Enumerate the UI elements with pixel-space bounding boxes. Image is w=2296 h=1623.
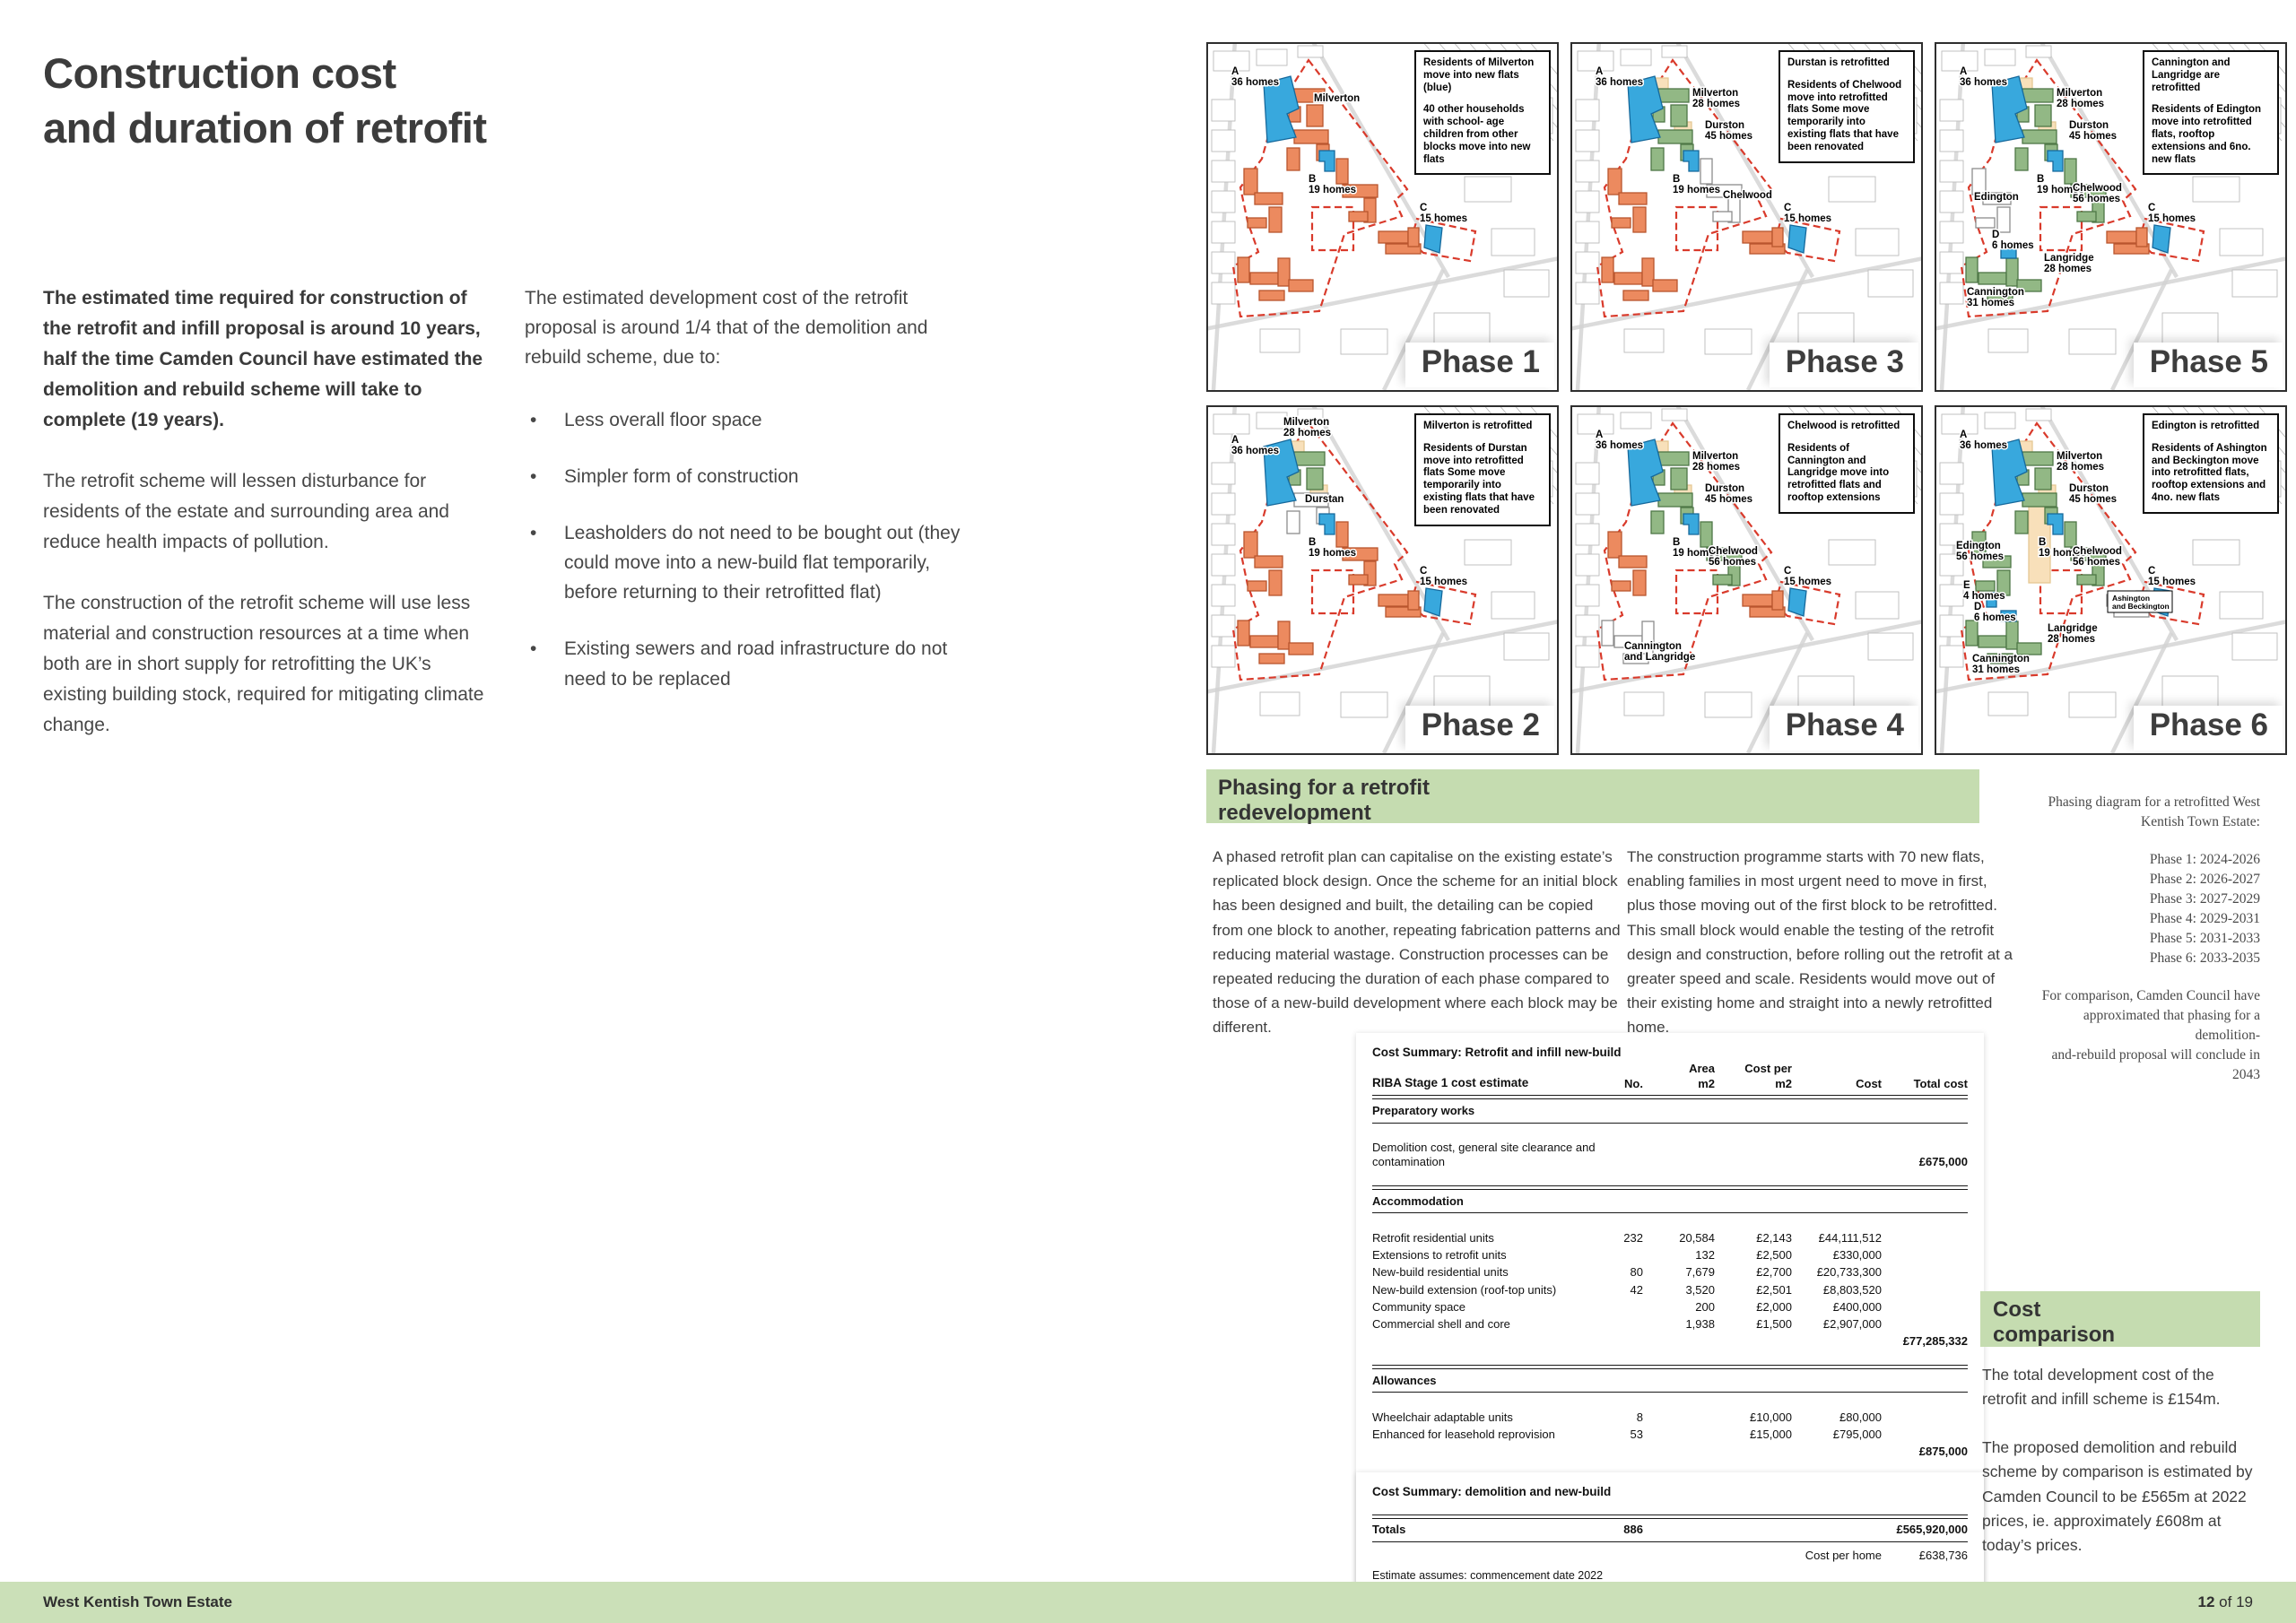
map-label: Durston45 homes bbox=[1705, 483, 1752, 505]
phase-label: Phase 5 bbox=[2134, 343, 2283, 387]
table-cell: £2,000 bbox=[1715, 1300, 1792, 1315]
annotation-paragraph: Edington is retrofitted bbox=[2152, 421, 2270, 433]
table-row: Extensions to retrofit units132£2,500£33… bbox=[1372, 1247, 1968, 1264]
map-label: Durston45 homes bbox=[2069, 120, 2117, 142]
bullet-item: Leasholders do not need to be bought out… bbox=[525, 518, 978, 608]
map-label: Langridge28 homes bbox=[2044, 253, 2094, 274]
section-row: Accommodation bbox=[1372, 1193, 1968, 1210]
table-row: £875,000 bbox=[1372, 1444, 1968, 1461]
map-label: Chelwood56 homes bbox=[2073, 546, 2122, 568]
paragraph: The construction of the retrofit scheme … bbox=[43, 588, 488, 741]
page-title-line2: and duration of retrofit bbox=[43, 107, 671, 149]
table-cell: £875,000 bbox=[1882, 1445, 1968, 1459]
map-label: B19 homes bbox=[1673, 174, 1720, 195]
column-header: Cost bbox=[1792, 1077, 1882, 1091]
phase-label: Phase 1 bbox=[1405, 343, 1554, 387]
table-title: Cost Summary: Retrofit and infill new-bu… bbox=[1372, 1046, 1968, 1061]
intro-paragraph: The estimated time required for construc… bbox=[43, 283, 488, 436]
map-label: Chelwood56 homes bbox=[1709, 546, 1758, 568]
table-cell: Enhanced for leasehold reprovision bbox=[1372, 1428, 1596, 1442]
report-page: Construction cost and duration of retrof… bbox=[0, 0, 2296, 1623]
map-label: A36 homes bbox=[1960, 66, 2007, 88]
table-cell: Allowances bbox=[1372, 1374, 1596, 1388]
map-label: C15 homes bbox=[1420, 566, 1467, 587]
margin-note-line: For comparison, Camden Council have bbox=[2031, 986, 2260, 1006]
table-cell: £44,111,512 bbox=[1792, 1231, 1882, 1245]
table-row: Commercial shell and core1,938£1,500£2,9… bbox=[1372, 1316, 1968, 1333]
annotation-paragraph: Milverton is retrofitted bbox=[1423, 421, 1542, 433]
table-cell: Wheelchair adaptable units bbox=[1372, 1410, 1596, 1425]
annotation-paragraph: Chelwood is retrofitted bbox=[1787, 421, 1906, 433]
section-row: Allowances bbox=[1372, 1372, 1968, 1389]
table-cell: £80,000 bbox=[1792, 1410, 1882, 1425]
table-title: Cost Summary: demolition and new-build bbox=[1372, 1485, 1968, 1500]
table-cell: £8,803,520 bbox=[1792, 1283, 1882, 1298]
margin-note-line: Phase 4: 2029-2031 bbox=[2031, 909, 2260, 929]
table-cell: £2,501 bbox=[1715, 1283, 1792, 1298]
table-row: Totals886£565,920,000 bbox=[1372, 1522, 1968, 1539]
table-cell: Community space bbox=[1372, 1300, 1596, 1315]
footer-estate-name: West Kentish Town Estate bbox=[43, 1593, 232, 1611]
table-row: Retrofit residential units23220,584£2,14… bbox=[1372, 1229, 1968, 1246]
paragraph: The retrofit scheme will lessen disturba… bbox=[43, 466, 488, 558]
map-label: Edington bbox=[1974, 192, 2019, 203]
footer-bar: West Kentish Town Estate 12 of 19 bbox=[0, 1582, 2296, 1623]
map-label: Cannington31 homes bbox=[1972, 654, 2030, 675]
map-label: C15 homes bbox=[1420, 203, 1467, 224]
table-cell: £400,000 bbox=[1792, 1300, 1882, 1315]
annotation-paragraph: Residents of Durstan move into retrofitt… bbox=[1423, 443, 1542, 517]
cost-comparison-heading: Cost comparison bbox=[1980, 1291, 2260, 1347]
phase-label: Phase 6 bbox=[2134, 706, 2283, 751]
table-cell: £330,000 bbox=[1792, 1248, 1882, 1263]
phasing-text-col1: A phased retrofit plan can capitalise on… bbox=[1213, 845, 1623, 1040]
table-cell: 53 bbox=[1596, 1428, 1643, 1442]
map-label: Milverton28 homes bbox=[2057, 88, 2104, 109]
phasing-text-col2: The construction programme starts with 7… bbox=[1627, 845, 2014, 1040]
column-header: No. bbox=[1596, 1077, 1643, 1091]
annotation-box: Residents of Milverton move into new fla… bbox=[1414, 50, 1551, 175]
map-label: C15 homes bbox=[2148, 566, 2196, 587]
map-label: B19 homes bbox=[1309, 537, 1356, 559]
map-label: Canningtonand Langridge bbox=[1624, 641, 1695, 663]
map-label: A36 homes bbox=[1231, 66, 1279, 88]
phase-panel-6: A36 homesMilverton28 homesDurston45 home… bbox=[1935, 405, 2287, 755]
map-label: Edington56 homes bbox=[1956, 541, 2004, 562]
table-cell: 80 bbox=[1596, 1265, 1643, 1280]
map-label: Milverton28 homes bbox=[1692, 88, 1740, 109]
cc-heading-line: Cost bbox=[1993, 1298, 2260, 1323]
margin-note-line: Phase 2: 2026-2027 bbox=[2031, 870, 2260, 890]
table-cell: Cost per home bbox=[1792, 1549, 1882, 1563]
table-cell: 232 bbox=[1596, 1231, 1643, 1245]
bullet-item: Less overall floor space bbox=[525, 405, 978, 435]
left-text-column: The estimated time required for construc… bbox=[43, 283, 488, 771]
table-row: Demolition cost, general site clearance … bbox=[1372, 1140, 1968, 1172]
phase-panel-3: A36 homesMilverton28 homesDurston45 home… bbox=[1570, 42, 1923, 392]
map-label: Milverton28 homes bbox=[1692, 451, 1740, 473]
table-cell: 42 bbox=[1596, 1283, 1643, 1298]
annotation-paragraph: Durstan is retrofitted bbox=[1787, 57, 1906, 70]
table-row: Community space200£2,000£400,000 bbox=[1372, 1298, 1968, 1315]
map-label: C15 homes bbox=[1784, 203, 1831, 224]
annotation-box: Durstan is retrofittedResidents of Chelw… bbox=[1779, 50, 1915, 163]
map-label: A36 homes bbox=[1596, 430, 1643, 451]
bullets-intro: The estimated development cost of the re… bbox=[525, 283, 978, 373]
table-cell: 200 bbox=[1643, 1300, 1715, 1315]
annotation-box: Cannington and Langridge are retrofitted… bbox=[2143, 50, 2279, 175]
table-cell: £77,285,332 bbox=[1882, 1334, 1968, 1349]
table-row: New-build extension (roof-top units)423,… bbox=[1372, 1281, 1968, 1298]
table-cell: 20,584 bbox=[1643, 1231, 1715, 1245]
phase-panel-5: A36 homesMilverton28 homesDurston45 home… bbox=[1935, 42, 2287, 392]
footer-page-number: 12 of 19 bbox=[2198, 1593, 2253, 1611]
table-row: £77,285,332 bbox=[1372, 1333, 1968, 1350]
map-label: Durston45 homes bbox=[2069, 483, 2117, 505]
bullet-item: Existing sewers and road infrastructure … bbox=[525, 634, 978, 693]
table-cell: 1,938 bbox=[1643, 1317, 1715, 1332]
table-cell: 132 bbox=[1643, 1248, 1715, 1263]
phasing-section-heading: Phasing for a retrofit redevelopment bbox=[1206, 769, 1979, 823]
table-cell: Totals bbox=[1372, 1523, 1596, 1537]
table-cell: Commercial shell and core bbox=[1372, 1317, 1596, 1332]
table-cell: Preparatory works bbox=[1372, 1104, 1596, 1118]
table-cell: £2,907,000 bbox=[1792, 1317, 1882, 1332]
phase-panel-2: Milverton28 homesA36 homesDurstanB19 hom… bbox=[1206, 405, 1559, 755]
table-cell: New-build residential units bbox=[1372, 1265, 1596, 1280]
map-label: A36 homes bbox=[1596, 66, 1643, 88]
table-cell: 3,520 bbox=[1643, 1283, 1715, 1298]
phasing-heading-line: redevelopment bbox=[1218, 801, 1979, 826]
page-title-line1: Construction cost bbox=[43, 52, 671, 94]
table-cell: RIBA Stage 1 cost estimate bbox=[1372, 1076, 1596, 1091]
bullet-list: Less overall floor spaceSimpler form of … bbox=[525, 405, 978, 694]
margin-note-line: approximated that phasing for a demoliti… bbox=[2031, 1006, 2260, 1046]
phase-panel-1: A36 homesMilvertonB19 homesC15 homesResi… bbox=[1206, 42, 1559, 392]
column-header: Cost perm2 bbox=[1715, 1062, 1792, 1091]
phase-panel-4: A36 homesMilverton28 homesDurston45 home… bbox=[1570, 405, 1923, 755]
phase-label: Phase 4 bbox=[1770, 706, 1918, 751]
margin-note-line: Kentish Town Estate: bbox=[2031, 812, 2260, 832]
map-label: Milverton bbox=[1314, 93, 1360, 104]
cc-heading-line: comparison bbox=[1993, 1323, 2260, 1348]
map-label: Langridge28 homes bbox=[2048, 623, 2098, 645]
table-row: Enhanced for leasehold reprovision53£15,… bbox=[1372, 1427, 1968, 1444]
annotation-paragraph: Residents of Milverton move into new fla… bbox=[1423, 57, 1542, 94]
phase-label: Phase 3 bbox=[1770, 343, 1918, 387]
table-cell: Retrofit residential units bbox=[1372, 1231, 1596, 1245]
annotation-box: Milverton is retrofittedResidents of Dur… bbox=[1414, 413, 1551, 526]
table-cell: £675,000 bbox=[1882, 1155, 1968, 1169]
annotation-paragraph: Residents of Cannington and Langridge mo… bbox=[1787, 443, 1906, 505]
footer-page-current: 12 bbox=[2198, 1593, 2215, 1610]
column-header: Aream2 bbox=[1643, 1062, 1715, 1091]
margin-note-line: Phase 6: 2033-2035 bbox=[2031, 949, 2260, 968]
margin-note-line: Phase 5: 2031-2033 bbox=[2031, 929, 2260, 949]
map-label: Chelwood bbox=[1723, 190, 1772, 201]
margin-note: Phasing diagram for a retrofitted WestKe… bbox=[2031, 793, 2260, 1085]
map-label: A36 homes bbox=[1231, 435, 1279, 456]
table-row: Wheelchair adaptable units8£10,000£80,00… bbox=[1372, 1409, 1968, 1426]
map-label: Durston45 homes bbox=[1705, 120, 1752, 142]
middle-text-column: The estimated development cost of the re… bbox=[525, 283, 978, 721]
margin-note-line: and-rebuild proposal will conclude in 20… bbox=[2031, 1046, 2260, 1085]
map-label: Cannington31 homes bbox=[1967, 287, 2024, 308]
map-label: C15 homes bbox=[1784, 566, 1831, 587]
margin-note-line: Phase 1: 2024-2026 bbox=[2031, 850, 2260, 870]
table-cell: £795,000 bbox=[1792, 1428, 1882, 1442]
annotation-paragraph: 40 other households with school- age chi… bbox=[1423, 104, 1542, 166]
table-cell: Extensions to retrofit units bbox=[1372, 1248, 1596, 1263]
map-label: Chelwood56 homes bbox=[2073, 183, 2122, 204]
table-cell: 7,679 bbox=[1643, 1265, 1715, 1280]
map-label: D6 homes bbox=[1992, 230, 2034, 251]
annotation-box: Chelwood is retrofittedResidents of Cann… bbox=[1779, 413, 1915, 514]
map-label: C15 homes bbox=[2148, 203, 2196, 224]
annotation-paragraph: Cannington and Langridge are retrofitted bbox=[2152, 57, 2270, 94]
phasing-heading-line: Phasing for a retrofit bbox=[1218, 776, 1979, 801]
table-cell: £2,143 bbox=[1715, 1231, 1792, 1245]
map-label: A36 homes bbox=[1960, 430, 2007, 451]
table-cell: £20,733,300 bbox=[1792, 1265, 1882, 1280]
table-cell: £638,736 bbox=[1882, 1549, 1968, 1563]
table-row: New-build residential units807,679£2,700… bbox=[1372, 1264, 1968, 1281]
table-cell: 8 bbox=[1596, 1410, 1643, 1425]
table-cell: New-build extension (roof-top units) bbox=[1372, 1283, 1596, 1298]
annotation-box: Edington is retrofittedResidents of Ashi… bbox=[2143, 413, 2279, 514]
map-label: B19 homes bbox=[1309, 174, 1356, 195]
map-label: Durstan bbox=[1305, 494, 1344, 505]
bullet-item: Simpler form of construction bbox=[525, 462, 978, 491]
phase-label: Phase 2 bbox=[1405, 706, 1554, 751]
map-label: Milverton28 homes bbox=[2057, 451, 2104, 473]
cc-paragraph: The proposed demolition and rebuild sche… bbox=[1982, 1436, 2253, 1558]
table-cell: 886 bbox=[1596, 1523, 1643, 1537]
table-cell: £2,700 bbox=[1715, 1265, 1792, 1280]
annotation-paragraph: Residents of Edington move into retrofit… bbox=[2152, 104, 2270, 166]
map-label: Milverton28 homes bbox=[1283, 417, 1331, 438]
section-row: Preparatory works bbox=[1372, 1102, 1968, 1119]
cost-comparison-text: The total development cost of the retrof… bbox=[1982, 1363, 2253, 1582]
table-row: Cost per home£638,736 bbox=[1372, 1547, 1968, 1564]
cost-table-demolition: Cost Summary: demolition and new-buildTo… bbox=[1356, 1472, 1984, 1598]
phase-diagram-grid: A36 homesMilvertonB19 homesC15 homesResi… bbox=[1206, 42, 2287, 755]
footer-page-total: of 19 bbox=[2214, 1593, 2253, 1610]
cc-paragraph: The total development cost of the retrof… bbox=[1982, 1363, 2253, 1411]
table-cell: £565,920,000 bbox=[1882, 1523, 1968, 1537]
column-header: Total cost bbox=[1882, 1077, 1968, 1091]
table-cell: £2,500 bbox=[1715, 1248, 1792, 1263]
table-cell: £15,000 bbox=[1715, 1428, 1792, 1442]
table-cell: Accommodation bbox=[1372, 1194, 1596, 1209]
page-title: Construction cost and duration of retrof… bbox=[43, 52, 671, 161]
table-cell: Demolition cost, general site clearance … bbox=[1372, 1141, 1596, 1170]
margin-note-line: Phasing diagram for a retrofitted West bbox=[2031, 793, 2260, 812]
annotation-paragraph: Residents of Ashington and Beckington mo… bbox=[2152, 443, 2270, 505]
table-cell: £10,000 bbox=[1715, 1410, 1792, 1425]
margin-note-line: Phase 3: 2027-2029 bbox=[2031, 890, 2260, 909]
table-cell: £1,500 bbox=[1715, 1317, 1792, 1332]
annotation-paragraph: Residents of Chelwood move into retrofit… bbox=[1787, 80, 1906, 154]
